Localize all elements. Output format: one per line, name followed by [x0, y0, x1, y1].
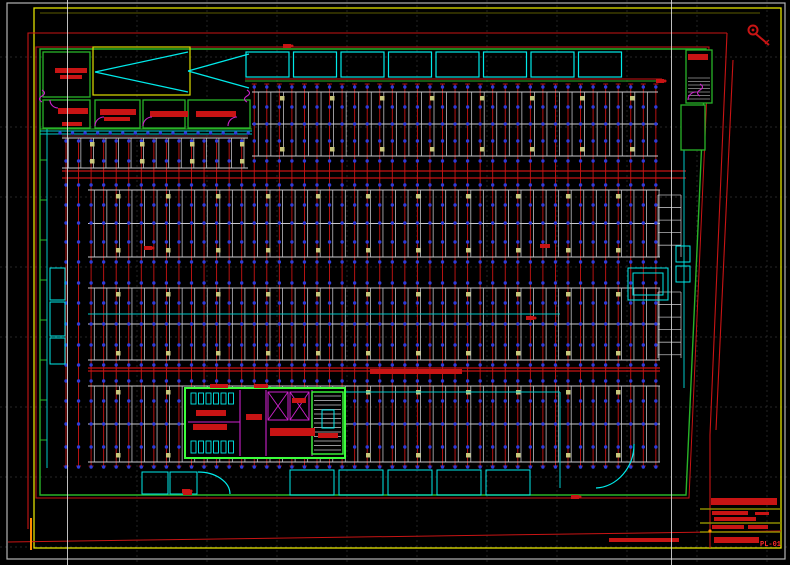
column-markers [90, 96, 635, 458]
ramp-area [93, 47, 249, 95]
plan-label: PL-01 [760, 541, 781, 549]
cad-canvas[interactable]: PL-01 [0, 0, 790, 565]
title-block [31, 498, 781, 550]
rooms-block [40, 50, 713, 150]
core-block [185, 384, 345, 458]
north-key-icon [749, 26, 770, 46]
cad-sheet: PL-01 [0, 0, 790, 565]
parking-stalls [62, 92, 681, 462]
